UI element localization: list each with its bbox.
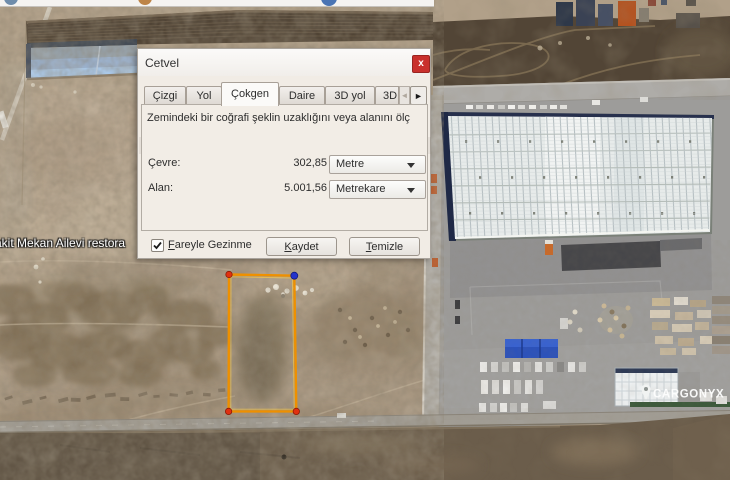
svg-text:CARGONYX: CARGONYX <box>653 389 724 401</box>
